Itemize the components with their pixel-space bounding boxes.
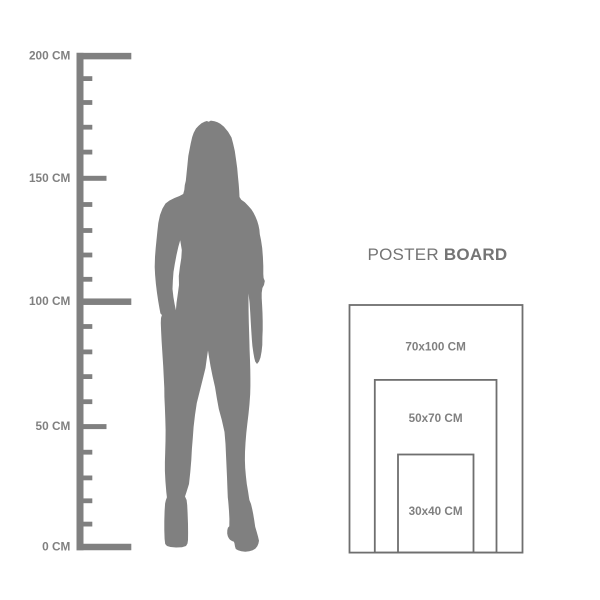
svg-text:30x40 CM: 30x40 CM bbox=[409, 505, 463, 518]
svg-text:150 CM: 150 CM bbox=[29, 171, 70, 185]
svg-text:POSTER BOARD: POSTER BOARD bbox=[368, 245, 508, 264]
svg-text:100 CM: 100 CM bbox=[29, 294, 70, 308]
svg-text:50 CM: 50 CM bbox=[36, 419, 71, 433]
svg-text:70x100 CM: 70x100 CM bbox=[405, 341, 465, 354]
svg-text:200 CM: 200 CM bbox=[29, 49, 70, 63]
svg-text:0 CM: 0 CM bbox=[42, 540, 70, 554]
svg-text:50x70 CM: 50x70 CM bbox=[409, 412, 463, 425]
